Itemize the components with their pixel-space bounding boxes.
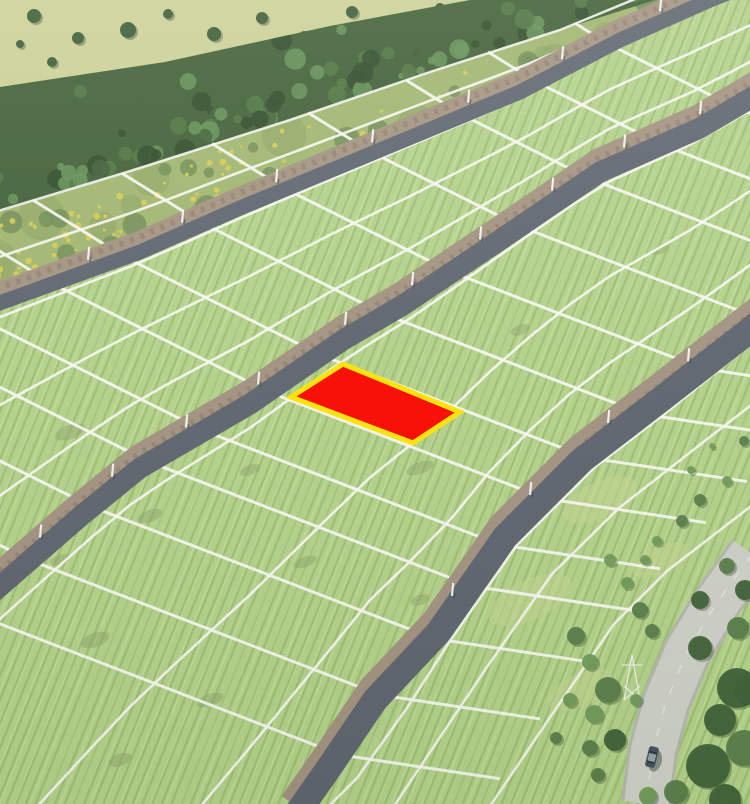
land-plots-scene — [0, 0, 750, 804]
haze-overlay — [0, 0, 750, 804]
aerial-photo — [0, 0, 750, 804]
